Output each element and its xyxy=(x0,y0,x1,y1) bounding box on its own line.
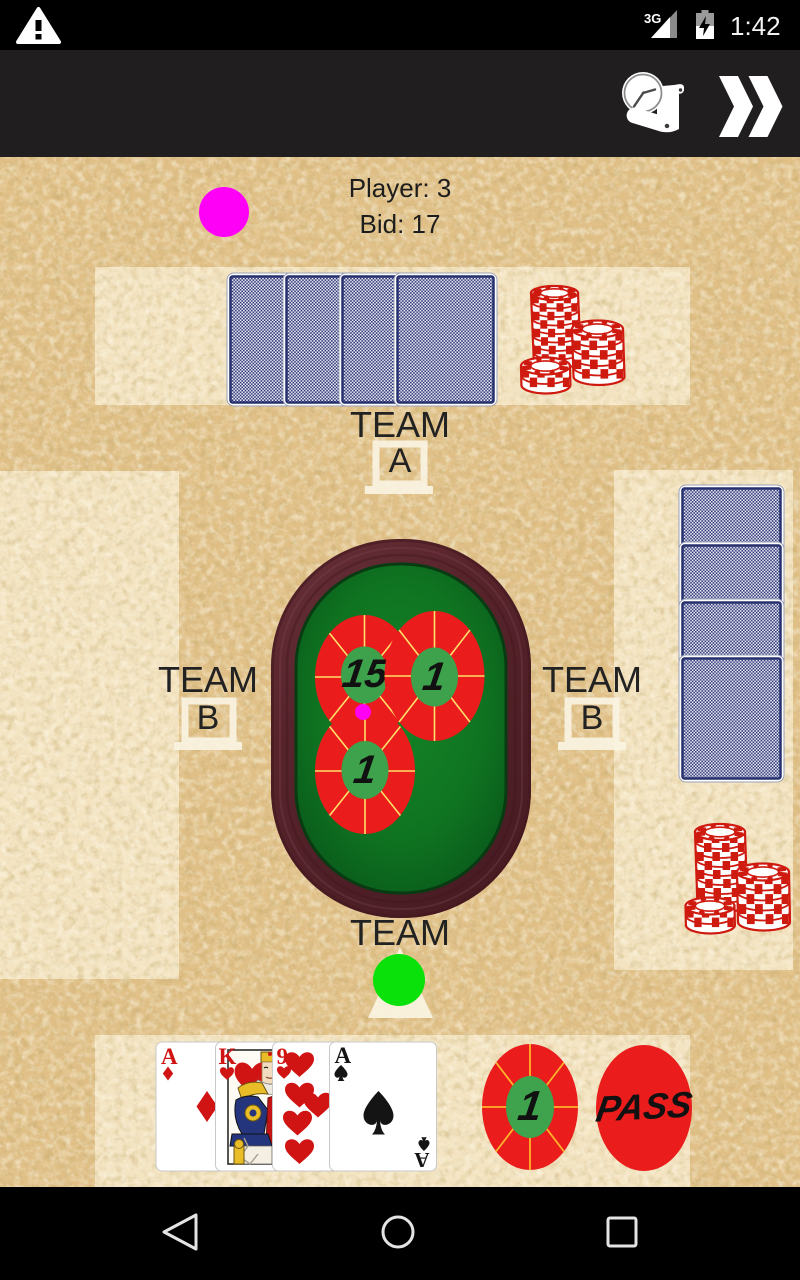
svg-text:A: A xyxy=(414,1148,430,1172)
svg-text:B: B xyxy=(197,699,220,737)
svg-text:TEAM: TEAM xyxy=(350,404,450,445)
svg-text:A: A xyxy=(389,442,412,480)
svg-text:K: K xyxy=(219,1044,237,1069)
svg-text:15: 15 xyxy=(340,651,391,696)
svg-text:TEAM: TEAM xyxy=(542,659,642,700)
svg-text:B: B xyxy=(581,699,604,737)
svg-text:Bid: 17: Bid: 17 xyxy=(360,209,441,239)
svg-text:A: A xyxy=(335,1043,352,1068)
svg-text:TEAM: TEAM xyxy=(158,659,258,700)
svg-text:PASS: PASS xyxy=(593,1084,695,1130)
svg-text:A: A xyxy=(161,1044,178,1069)
svg-text:1:42: 1:42 xyxy=(730,11,781,41)
svg-text:3G: 3G xyxy=(644,11,661,26)
svg-text:TEAM: TEAM xyxy=(350,912,450,953)
svg-text:Player: 3: Player: 3 xyxy=(349,173,452,203)
